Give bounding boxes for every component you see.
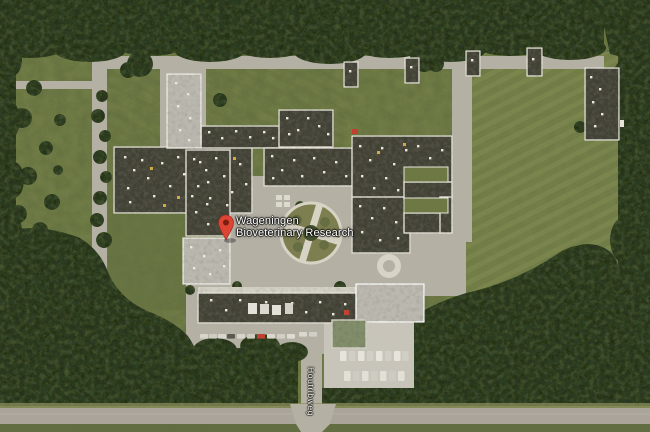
street-label: Houtribweg	[306, 367, 316, 416]
place-label-line1: Wageningen	[236, 216, 354, 228]
map-viewport[interactable]: Wageningen Bioveterinary Research Houtri…	[0, 0, 650, 432]
place-label[interactable]: Wageningen Bioveterinary Research	[236, 216, 354, 239]
place-label-line2: Bioveterinary Research	[236, 228, 354, 240]
